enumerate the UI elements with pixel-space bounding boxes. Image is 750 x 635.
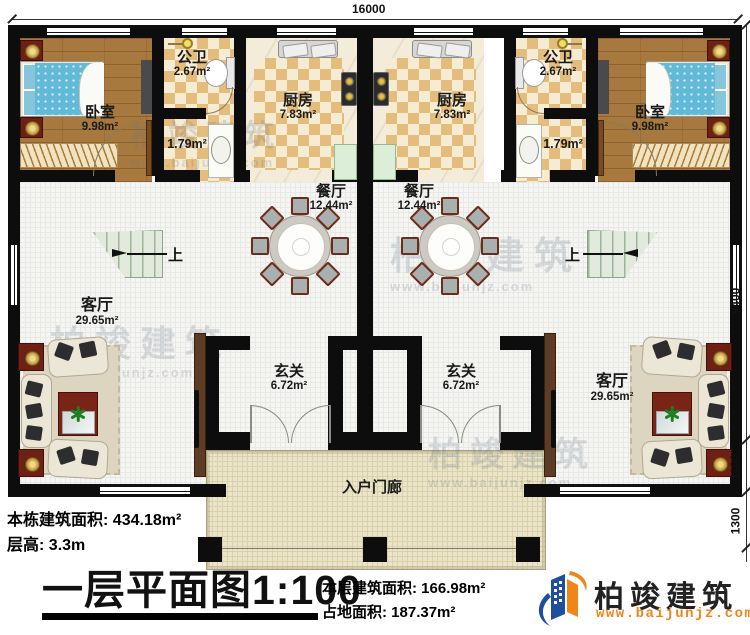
wall-toprow-f (501, 170, 509, 182)
end-table-lamp (706, 343, 732, 371)
porch-column (516, 537, 540, 562)
nightstand-lamp (20, 117, 43, 138)
dim-width-total: 16000 (352, 2, 385, 16)
kitchen-counter (373, 144, 396, 180)
bedroom-door-leaf (146, 120, 152, 176)
sofa-cushion (707, 403, 725, 420)
sink-bowl (310, 42, 337, 58)
end-table-lamp (18, 343, 44, 371)
dining-chair (331, 237, 349, 255)
room-label-dining-right: 餐厅12.44m² (379, 184, 459, 212)
plant (664, 406, 680, 422)
kitchen-counter (334, 144, 357, 180)
basin (211, 136, 231, 164)
company-website: www.baijunjz.com (596, 606, 750, 622)
sofa (47, 438, 109, 479)
end-table-lamp (18, 449, 44, 477)
sofa-cushion (25, 403, 43, 420)
wall-toprow-c (242, 170, 250, 182)
window-top-kitchen-left (277, 25, 336, 38)
sink-bowl (444, 42, 471, 58)
floor-plan-page: 柏竣建筑www.baijunjz.com 柏竣建筑www.baijunjz.co… (0, 0, 750, 635)
bedroom-tv (598, 60, 609, 114)
room-label-foyer-left: 玄关6.72m² (249, 364, 329, 392)
stove (373, 72, 389, 106)
room-label-foyer-right: 玄关6.72m² (421, 364, 501, 392)
table-center (292, 238, 310, 256)
window-left-living (8, 245, 20, 305)
wall-toprow-b (155, 170, 200, 182)
burner (345, 92, 354, 101)
sofa-cushion (25, 425, 43, 441)
tv (551, 390, 556, 448)
pillow (714, 90, 727, 116)
sofa (641, 336, 704, 378)
dining-chair (291, 277, 309, 295)
window-top-bedroom-right (620, 25, 703, 38)
stairs-direction-arrow (623, 249, 638, 257)
stairs-direction-line (583, 253, 623, 255)
burner (345, 77, 354, 86)
company-logo-icon (534, 567, 590, 629)
wall-foyer-bottom-right (500, 432, 544, 450)
dim-depth-offset: 1100 (728, 454, 742, 480)
window-top-bath-left (182, 25, 227, 38)
sofa-cushion (677, 343, 696, 361)
window-bottom-living-left (100, 484, 190, 497)
floor-height-note: 层高: 3.3m (7, 531, 85, 555)
room-label-dining-left: 餐厅12.44m² (291, 184, 371, 212)
sofa (47, 336, 110, 378)
nightstand-lamp (707, 40, 730, 61)
wall-foyer-top-center (328, 336, 422, 350)
wall-lamp-icon (566, 43, 582, 45)
pillow (714, 64, 727, 90)
stairs-up-label: 上 (565, 244, 580, 265)
stairs-up-label: 上 (168, 244, 183, 265)
wall-party-center (357, 38, 373, 450)
room-label-bathlobby-right: 1.79m² (538, 138, 588, 151)
kitchen-sink (412, 40, 472, 58)
dim-depth-porch: 1300 (728, 508, 742, 535)
room-label-bath-left: 公卫2.67m² (162, 50, 222, 78)
window-top-bedroom-left (47, 25, 130, 38)
dining-chair (481, 237, 499, 255)
sofa-cushion (675, 447, 693, 465)
nightstand-lamp (20, 40, 43, 61)
tv (194, 390, 199, 448)
sink-bowl (416, 42, 443, 58)
dim-line-top (12, 19, 738, 20)
room-label-bathlobby-left: 1.79m² (162, 138, 212, 151)
stove (341, 72, 357, 106)
sink-bowl (282, 42, 309, 58)
room-label-kitchen-right: 厨房7.83m² (412, 93, 492, 121)
room-label-bath-right: 公卫2.67m² (528, 50, 588, 78)
burner (377, 92, 386, 101)
wall-foyer-bottom-left (206, 432, 250, 450)
dining-chair (251, 237, 269, 255)
footprint-note: 占地面积: 187.37m² (322, 601, 455, 622)
wall-bath-kitchen-left (234, 38, 246, 182)
window-bottom-living-right (560, 484, 650, 497)
room-label-kitchen-left: 厨房7.83m² (258, 93, 338, 121)
dim-depth-main: 9400 (728, 288, 742, 315)
burner (377, 77, 386, 86)
nightstand-lamp (707, 117, 730, 138)
room-label-bedroom-left: 卧室9.98m² (60, 105, 140, 133)
dining-chair (441, 277, 459, 295)
stairs-direction-line (127, 253, 167, 255)
wall-bath-divider-left (164, 108, 206, 119)
wall-bath-divider-right (544, 108, 586, 119)
sofa-cushion (81, 449, 99, 467)
room-label-living-right: 客厅29.65m² (572, 374, 652, 403)
wall-lamp-icon (557, 38, 568, 49)
stairs-direction-arrow (112, 249, 127, 257)
bedroom-tv (141, 60, 152, 114)
room-label-bedroom-right: 卧室9.98m² (610, 105, 690, 133)
drawing-title: 一层平面图1:100 (42, 570, 362, 611)
wall-foyer-bottom-center (330, 432, 420, 450)
room-label-porch: 入户门廊 (312, 480, 432, 496)
room-label-living-left: 客厅29.65m² (57, 298, 137, 327)
table-center (442, 238, 460, 256)
wall-foyer-top-left (206, 336, 250, 350)
porch-column (363, 537, 387, 562)
wall-foyer-top-right (500, 336, 544, 350)
porch-column (198, 537, 222, 562)
plant (70, 406, 86, 422)
wall-toprow-g (550, 170, 595, 182)
dim-line-right (746, 25, 747, 562)
total-area-note: 本栋建筑面积: 434.18m² (7, 506, 181, 530)
floor-area-note: 本层建筑面积: 166.98m² (322, 577, 485, 598)
sofa-cushion (707, 425, 725, 441)
wall-lamp-icon (182, 38, 193, 49)
dining-chair (401, 237, 419, 255)
kitchen-sink (278, 40, 338, 58)
title-underline (42, 613, 318, 620)
window-top-kitchen-right (414, 25, 473, 38)
window-top-bath-right (523, 25, 568, 38)
basin (519, 136, 539, 164)
